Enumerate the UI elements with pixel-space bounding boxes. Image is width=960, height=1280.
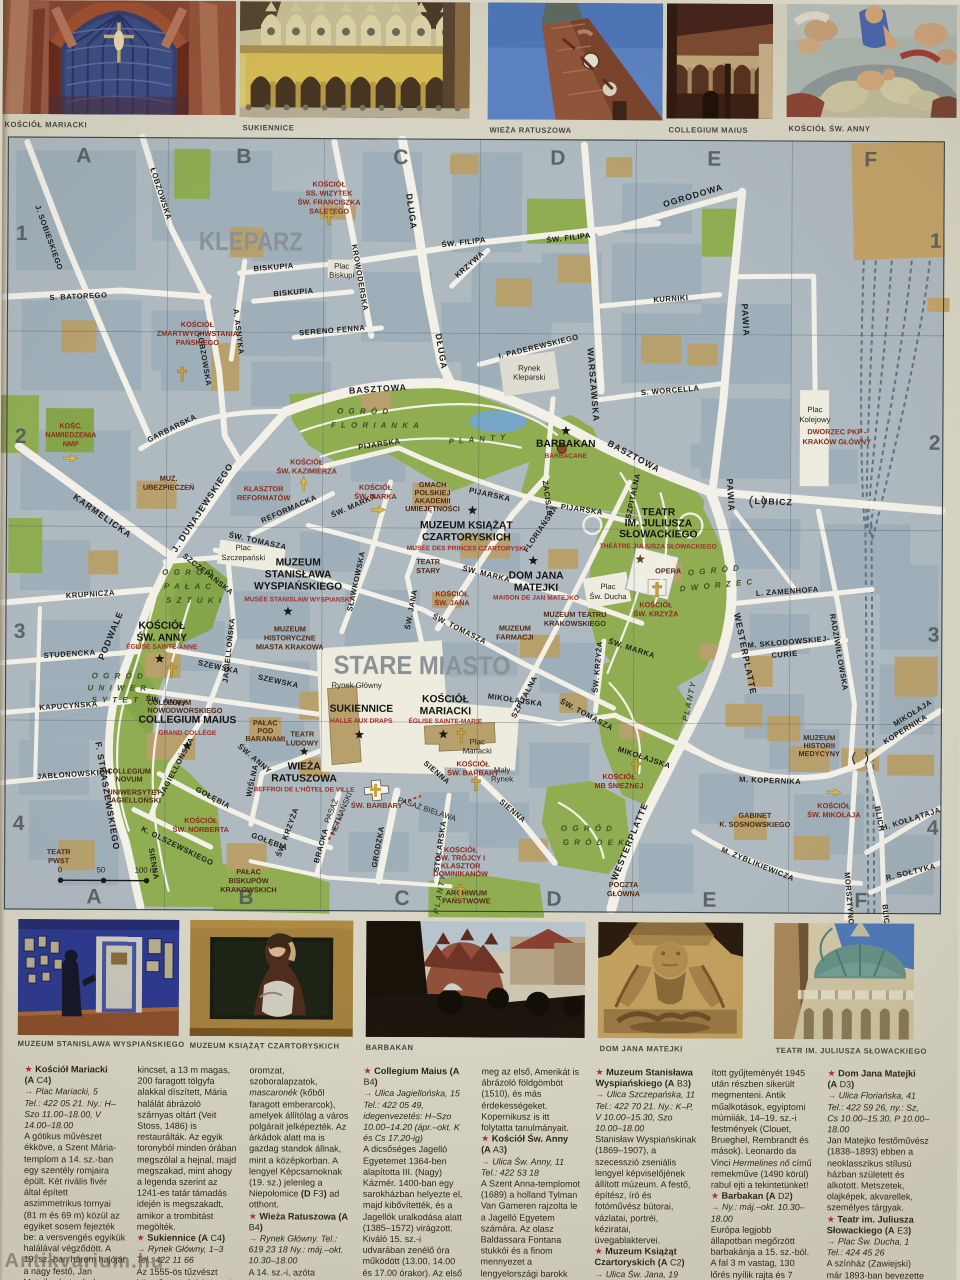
svg-text:KLASZTOR: KLASZTOR [244, 484, 284, 493]
svg-text:PAŃSKIEGO: PAŃSKIEGO [176, 338, 220, 347]
svg-text:Plac: Plac [236, 543, 251, 552]
svg-text:PAŁAC: PAŁAC [236, 867, 261, 876]
svg-text:ŚW. MARKA: ŚW. MARKA [354, 492, 397, 501]
svg-text:ÉGLISE SAINTE-MARIE: ÉGLISE SAINTE-MARIE [409, 716, 483, 725]
svg-text:3: 3 [14, 620, 26, 643]
svg-text:KOŚCIÓŁ: KOŚCIÓŁ [602, 772, 636, 781]
svg-text:FARMACJI: FARMACJI [496, 632, 533, 641]
svg-text:BARBAKAN: BARBAKAN [536, 439, 596, 450]
svg-text:IM. JULIUSZA: IM. JULIUSZA [625, 518, 693, 529]
svg-text:KOŚCIÓŁ: KOŚCIÓŁ [181, 320, 215, 329]
svg-text:O G R Ó D: O G R Ó D [92, 671, 145, 680]
svg-text:PWST: PWST [48, 856, 70, 865]
svg-text:KLEPARZ: KLEPARZ [199, 226, 303, 257]
svg-text:MB ŚNIEŻNEJ: MB ŚNIEŻNEJ [594, 781, 643, 790]
svg-text:S Z T U K I: S Z T U K I [166, 596, 223, 605]
svg-text:MUZEUM: MUZEUM [499, 624, 531, 633]
svg-text:F: F [864, 148, 877, 171]
svg-text:Szczepański: Szczepański [221, 553, 265, 562]
svg-text:C: C [394, 887, 409, 910]
svg-text:Plac: Plac [470, 737, 485, 746]
svg-text:Kolejowy: Kolejowy [799, 415, 830, 424]
svg-text:1: 1 [930, 230, 942, 253]
svg-text:1: 1 [16, 222, 28, 245]
svg-text:NOVUM: NOVUM [115, 775, 142, 784]
svg-text:PAWIA: PAWIA [740, 303, 752, 337]
svg-text:NMP: NMP [63, 439, 79, 448]
svg-text:TEATR: TEATR [642, 507, 676, 518]
svg-text:4: 4 [13, 812, 25, 835]
svg-text:TEATR: TEATR [290, 729, 315, 738]
svg-text:MAISON DE JAN MATEJKO: MAISON DE JAN MATEJKO [493, 594, 579, 601]
svg-text:U N I W E R -: U N I W E R - [88, 683, 156, 692]
svg-text:HISTORYCZNE: HISTORYCZNE [264, 633, 316, 642]
svg-text:MATEJKI: MATEJKI [514, 583, 559, 594]
svg-text:D: D [550, 147, 565, 170]
svg-text:BARANAMI: BARANAMI [245, 734, 285, 743]
svg-text:PAŃSTWOWE: PAŃSTWOWE [442, 896, 491, 905]
svg-text:KRAKOWSKICH: KRAKOWSKICH [220, 885, 276, 894]
svg-text:O G R Ó D: O G R Ó D [337, 407, 390, 416]
svg-text:NAWIEDZENIA: NAWIEDZENIA [45, 430, 97, 439]
svg-text:BISKUPÓW: BISKUPÓW [228, 876, 268, 885]
svg-text:D: D [546, 888, 561, 911]
svg-text:S Y T E T: S Y T E T [91, 695, 139, 704]
svg-text:DWORZEC PKP -: DWORZEC PKP - [807, 427, 867, 436]
svg-text:SŁOWACKIEGO: SŁOWACKIEGO [619, 529, 697, 540]
svg-text:4: 4 [927, 817, 939, 840]
svg-text:KOŚCIÓŁ: KOŚCIÓŁ [435, 589, 469, 598]
svg-text:MUZEUM: MUZEUM [274, 624, 306, 633]
svg-text:C: C [393, 146, 408, 169]
svg-text:Biskupi: Biskupi [329, 271, 354, 280]
svg-text:ŚW. KAZIMIERZA: ŚW. KAZIMIERZA [276, 466, 337, 475]
svg-text:ŚW. FRANCISZKA: ŚW. FRANCISZKA [298, 197, 362, 206]
svg-text:MARIACKI: MARIACKI [420, 706, 472, 717]
svg-text:Rynek: Rynek [518, 364, 540, 373]
svg-text:ŚW. BARBARY: ŚW. BARBARY [351, 801, 403, 810]
svg-text:SS. WIZYTEK: SS. WIZYTEK [306, 188, 353, 197]
svg-text:HALLE AUX DRAPS: HALLE AUX DRAPS [330, 718, 393, 725]
svg-text:100 m: 100 m [135, 866, 157, 875]
svg-text:JAGIELLOŃSKI: JAGIELLOŃSKI [107, 795, 161, 804]
svg-text:Kleparski: Kleparski [513, 373, 545, 382]
svg-text:KOŚC.: KOŚC. [59, 421, 82, 430]
svg-text:50: 50 [97, 865, 106, 874]
svg-text:ZMARTWYCHWSTANIA: ZMARTWYCHWSTANIA [157, 329, 239, 338]
svg-text:B: B [236, 145, 251, 168]
svg-text:MUZ.: MUZ. [160, 474, 178, 483]
svg-text:NOWODWORSKIEGO: NOWODWORSKIEGO [147, 706, 222, 715]
svg-text:RATUSZOWA: RATUSZOWA [271, 773, 337, 784]
svg-text:MEDYCYNY: MEDYCYNY [799, 749, 841, 758]
svg-text:2: 2 [929, 432, 941, 455]
svg-text:O G R Ó D: O G R Ó D [561, 824, 614, 833]
svg-text:Plac: Plac [807, 405, 822, 414]
svg-text:KOŚCIÓŁ: KOŚCIÓŁ [422, 692, 469, 705]
svg-text:ŚW. ANNY: ŚW. ANNY [136, 631, 187, 644]
svg-text:LUBICZ: LUBICZ [754, 496, 793, 508]
svg-text:2: 2 [15, 425, 27, 448]
svg-text:TEATR: TEATR [416, 557, 441, 566]
svg-text:DOM JANA: DOM JANA [509, 571, 565, 582]
svg-text:KOŚCIÓŁ: KOŚCIÓŁ [639, 600, 673, 609]
svg-text:STARE MIASTO: STARE MIASTO [334, 650, 511, 681]
svg-text:Plac: Plac [334, 262, 349, 271]
svg-text:REFORMATÓW: REFORMATÓW [237, 493, 291, 502]
svg-text:MUZEUM: MUZEUM [276, 557, 321, 568]
svg-text:WYSPIAŃSKIEGO: WYSPIAŃSKIEGO [254, 579, 342, 592]
svg-text:A: A [86, 885, 101, 908]
svg-text:KOŚCIÓŁ: KOŚCIÓŁ [456, 759, 490, 768]
svg-text:KRAKOWSKIEGO: KRAKOWSKIEGO [544, 619, 606, 628]
svg-text:Św. Ducha: Św. Ducha [589, 592, 627, 601]
svg-text:E: E [702, 889, 716, 912]
svg-text:GABINET: GABINET [738, 811, 771, 820]
svg-text:0: 0 [58, 865, 63, 874]
svg-text:KOŚCIÓŁ: KOŚCIÓŁ [359, 483, 393, 492]
svg-text:LUDOWY: LUDOWY [286, 738, 319, 747]
svg-text:3: 3 [928, 624, 940, 647]
svg-text:Rynek: Rynek [491, 774, 513, 783]
svg-text:KOŚCIÓŁ: KOŚCIÓŁ [817, 801, 851, 810]
svg-text:ÉGLISE SAINTE-ANNE: ÉGLISE SAINTE-ANNE [126, 642, 198, 651]
svg-text:TEATR: TEATR [47, 847, 72, 856]
svg-text:ŚW. NORBERTA: ŚW. NORBERTA [173, 825, 230, 834]
svg-text:CZARTORYSKICH: CZARTORYSKICH [422, 532, 511, 543]
svg-text:BARBACANE: BARBACANE [544, 453, 587, 460]
svg-text:UBEZPIECZEŃ: UBEZPIECZEŃ [143, 483, 195, 492]
svg-text:WIEŻA: WIEŻA [288, 759, 322, 772]
svg-text:G R Ó D E K: G R Ó D E K [563, 838, 626, 847]
svg-text:POCZTA: POCZTA [609, 880, 639, 889]
svg-text:MIASTA KRAKOWA: MIASTA KRAKOWA [256, 642, 324, 651]
svg-text:F: F [854, 889, 867, 912]
svg-text:KOŚCIÓŁ: KOŚCIÓŁ [138, 619, 185, 632]
svg-text:Rynek Główny: Rynek Główny [332, 681, 382, 690]
svg-text:ŚW. JANA: ŚW. JANA [434, 598, 470, 607]
svg-text:P A Ł A C: P A Ł A C [164, 582, 213, 591]
svg-text:K. SOSNOWSKIEGO: K. SOSNOWSKIEGO [719, 820, 790, 829]
svg-text:GRAND COLLÈGE: GRAND COLLÈGE [158, 728, 217, 737]
svg-text:ŚW. MIKOŁAJA: ŚW. MIKOŁAJA [807, 810, 861, 819]
svg-text:UMIEJĘTNOŚCI: UMIEJĘTNOŚCI [405, 504, 460, 513]
svg-text:F L O R I A N K A: F L O R I A N K A [331, 421, 420, 430]
svg-text:Mariacki: Mariacki [463, 746, 492, 755]
svg-text:DOMINIKANÓW: DOMINIKANÓW [433, 869, 488, 878]
svg-text:A: A [76, 144, 91, 167]
svg-text:PAWIA: PAWIA [725, 478, 737, 512]
svg-text:E: E [707, 148, 721, 171]
svg-text:STANISŁAWA: STANISŁAWA [265, 569, 332, 580]
svg-text:KOŚCIÓŁ: KOŚCIÓŁ [184, 816, 218, 825]
svg-text:KOŚCIÓŁ: KOŚCIÓŁ [290, 457, 324, 466]
svg-text:Plac: Plac [600, 582, 615, 591]
svg-text:KOŚCIÓŁ: KOŚCIÓŁ [313, 180, 347, 189]
svg-text:SUKIENNICE: SUKIENNICE [330, 704, 394, 715]
svg-text:MUZEUM KSIĄŻĄT: MUZEUM KSIĄŻĄT [420, 518, 513, 531]
svg-text:OPERA: OPERA [655, 566, 682, 575]
svg-text:O G R Ó D: O G R Ó D [162, 568, 215, 577]
svg-text:MUZEUM TEATRU: MUZEUM TEATRU [543, 610, 606, 619]
svg-text:GŁÓWNA: GŁÓWNA [607, 889, 641, 898]
svg-text:STARY: STARY [416, 566, 440, 575]
svg-text:COLLEGIUM MAIUS: COLLEGIUM MAIUS [138, 715, 236, 727]
svg-text:ŚW. KRZYŻA: ŚW. KRZYŻA [633, 609, 679, 618]
svg-text:KRAKÓW GŁÓWNY: KRAKÓW GŁÓWNY [803, 437, 872, 446]
svg-text:Mały: Mały [494, 765, 511, 774]
